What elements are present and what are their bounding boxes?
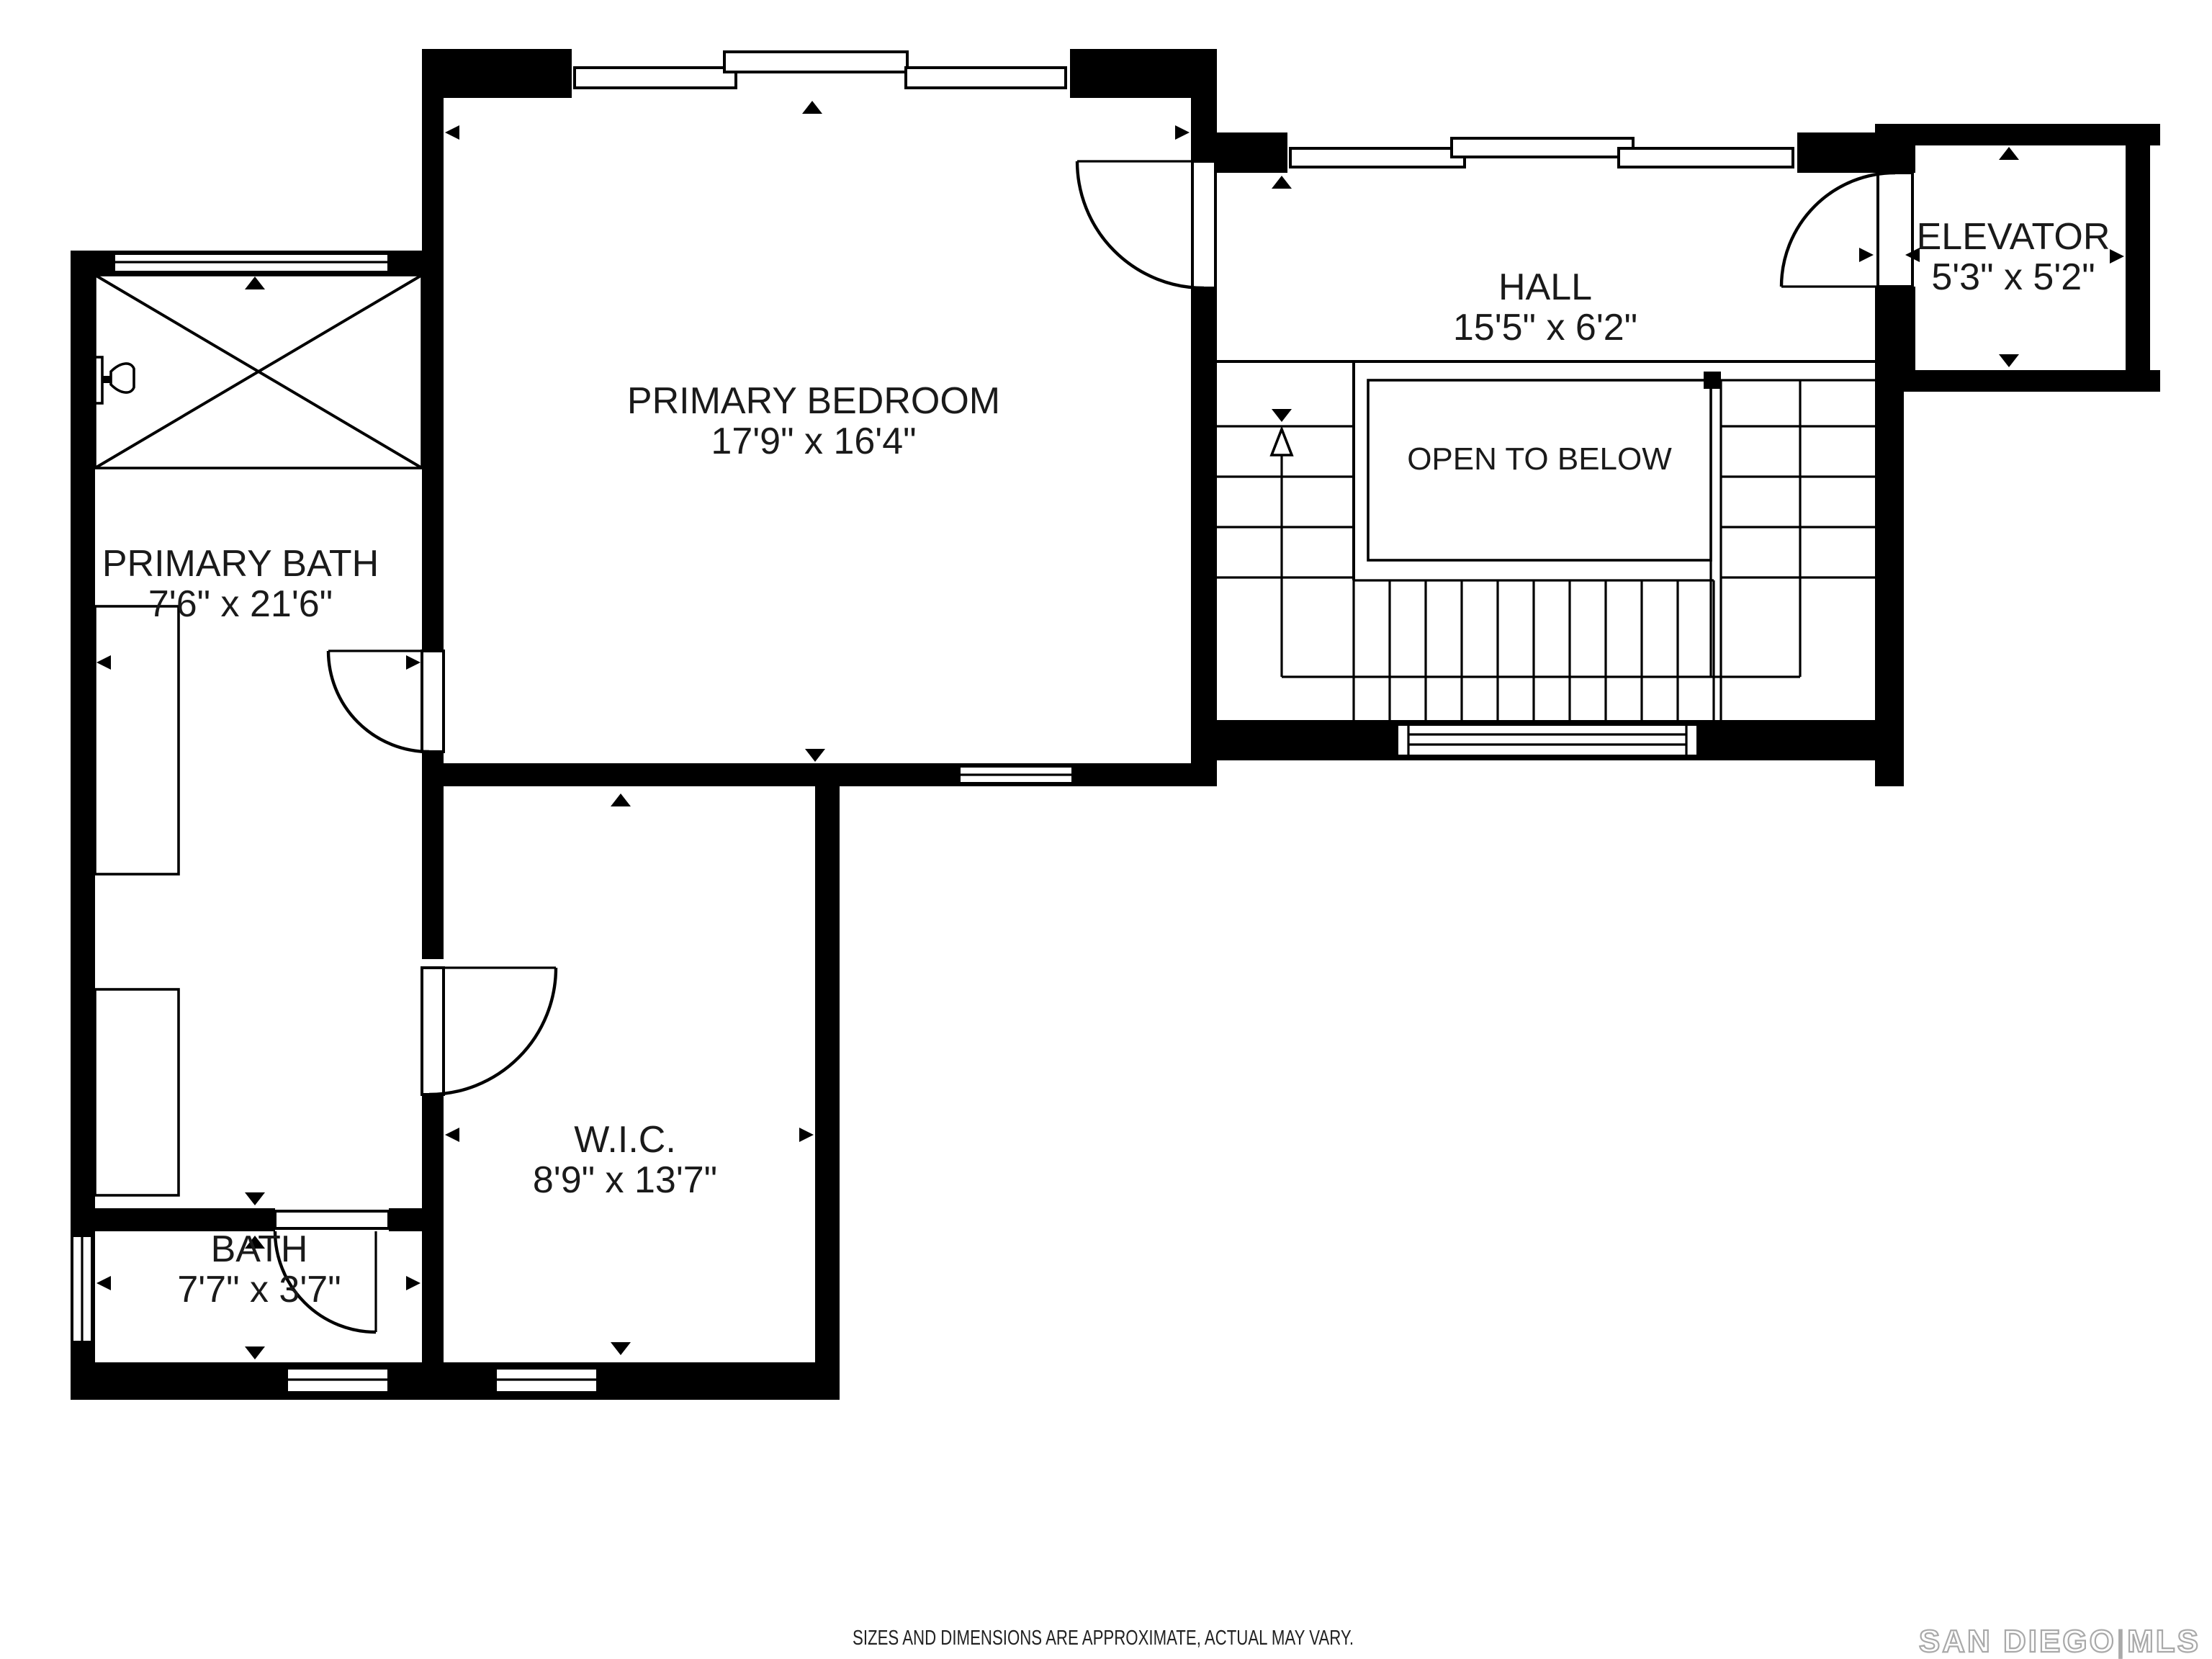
small-bath-dims: 7'7" x 3'7" [177, 1269, 341, 1310]
disclaimer-text: SIZES AND DIMENSIONS ARE APPROXIMATE, AC… [853, 1627, 1354, 1650]
shower-head-mount-icon [95, 357, 102, 403]
hall-door-leaf [1878, 173, 1912, 287]
small-bath-partition-right [389, 1208, 422, 1231]
elevator-label: ELEVATOR [1917, 216, 2110, 258]
small-bath-top-marker-down-icon [245, 1192, 265, 1205]
wic-right-wall [815, 763, 840, 1400]
elevator-right-marker-icon [2110, 249, 2124, 264]
partition-wall-lower [422, 1090, 444, 1362]
bedroom-window-center [724, 52, 907, 72]
elevator-bottom-marker-icon [1999, 354, 2019, 367]
bedroom-left-marker-icon [445, 125, 459, 140]
bedroom-window-right [906, 68, 1066, 88]
shower-head-icon [111, 364, 134, 392]
hall-window-left [1290, 148, 1465, 167]
hall-right-wall-middle [1875, 287, 1915, 392]
open-to-below-label: OPEN TO BELOW [1407, 441, 1672, 477]
hall-right-wall-upper [1875, 145, 1915, 173]
bedroom-right-marker-icon [1175, 125, 1190, 140]
partition-wall-upper [422, 49, 444, 651]
primary-bedroom-dims: 17'9" x 16'4" [711, 421, 916, 462]
primary-bedroom-label: PRIMARY BEDROOM [627, 380, 1000, 422]
elevator-right-wall [2126, 124, 2150, 392]
wic-door-arc [429, 968, 556, 1094]
hall-dims: 15'5" x 6'2" [1453, 307, 1637, 349]
hall-window-right [1619, 148, 1793, 167]
hall-top-marker-icon [1272, 176, 1292, 189]
elevator-top-marker-icon [1999, 147, 2019, 160]
small-bath-label: BATH [211, 1228, 308, 1270]
wic-dims: 8'9" x 13'7" [533, 1159, 717, 1201]
bedroom-window-left [575, 68, 736, 88]
elevator-dims: 5'3" x 5'2" [1931, 256, 2095, 298]
wic-left-marker-icon [445, 1128, 459, 1142]
stairs-up-arrow-icon [1272, 429, 1292, 455]
vanity-upper [95, 606, 179, 874]
wic-bottom-marker-icon [611, 1342, 631, 1355]
watermark-suffix: MLS [2127, 1624, 2200, 1659]
primary-bath-door-leaf [422, 651, 444, 752]
floorplan-page: PRIMARY BEDROOM 17'9" x 16'4" PRIMARY BA… [0, 0, 2212, 1659]
small-bath-right-marker-icon [406, 1276, 421, 1290]
vanity-lower [95, 989, 179, 1195]
plan-bottom-wall [71, 1362, 840, 1400]
bedroom-hall-door-leaf [1192, 161, 1215, 288]
stairs [1217, 361, 1875, 720]
primary-bath-dims: 7'6" x 21'6" [148, 583, 333, 625]
watermark-brand: SAN DIEGO [1919, 1624, 2116, 1659]
wic-right-marker-icon [799, 1128, 814, 1142]
wic-door-leaf [422, 968, 444, 1094]
stairs-landing-window [1397, 724, 1698, 756]
bedroom-hall-door-arc [1077, 161, 1204, 288]
primary-bath-label: PRIMARY BATH [102, 543, 379, 585]
small-bath-bottom-marker-icon [245, 1346, 265, 1359]
primary-bath-door-arc [328, 651, 429, 752]
small-bath-left-marker-icon [96, 1276, 111, 1290]
bedroom-top-marker-icon [802, 101, 822, 114]
stairs-dim-marker-down-icon [1272, 409, 1292, 422]
hall-label: HALL [1498, 266, 1592, 308]
bedroom-right-wall-lower [1191, 288, 1217, 763]
floorplan-canvas: PRIMARY BEDROOM 17'9" x 16'4" PRIMARY BA… [0, 0, 2212, 1659]
hall-window-center [1452, 138, 1633, 157]
elevator-top-wall [1875, 124, 2160, 145]
mls-watermark: SAN DIEGO|MLS [1919, 1624, 2200, 1659]
watermark-divider: | [2116, 1624, 2127, 1659]
primary-bath-right-marker-icon [406, 655, 421, 670]
small-bath-door-leaf [275, 1211, 389, 1228]
wic-label: W.I.C. [574, 1119, 676, 1161]
elevator-bottom-wall [1875, 370, 2160, 392]
wic-top-marker-icon [611, 793, 631, 806]
bedroom-bottom-marker-icon [805, 749, 825, 762]
hall-door-marker-icon [1859, 248, 1874, 262]
